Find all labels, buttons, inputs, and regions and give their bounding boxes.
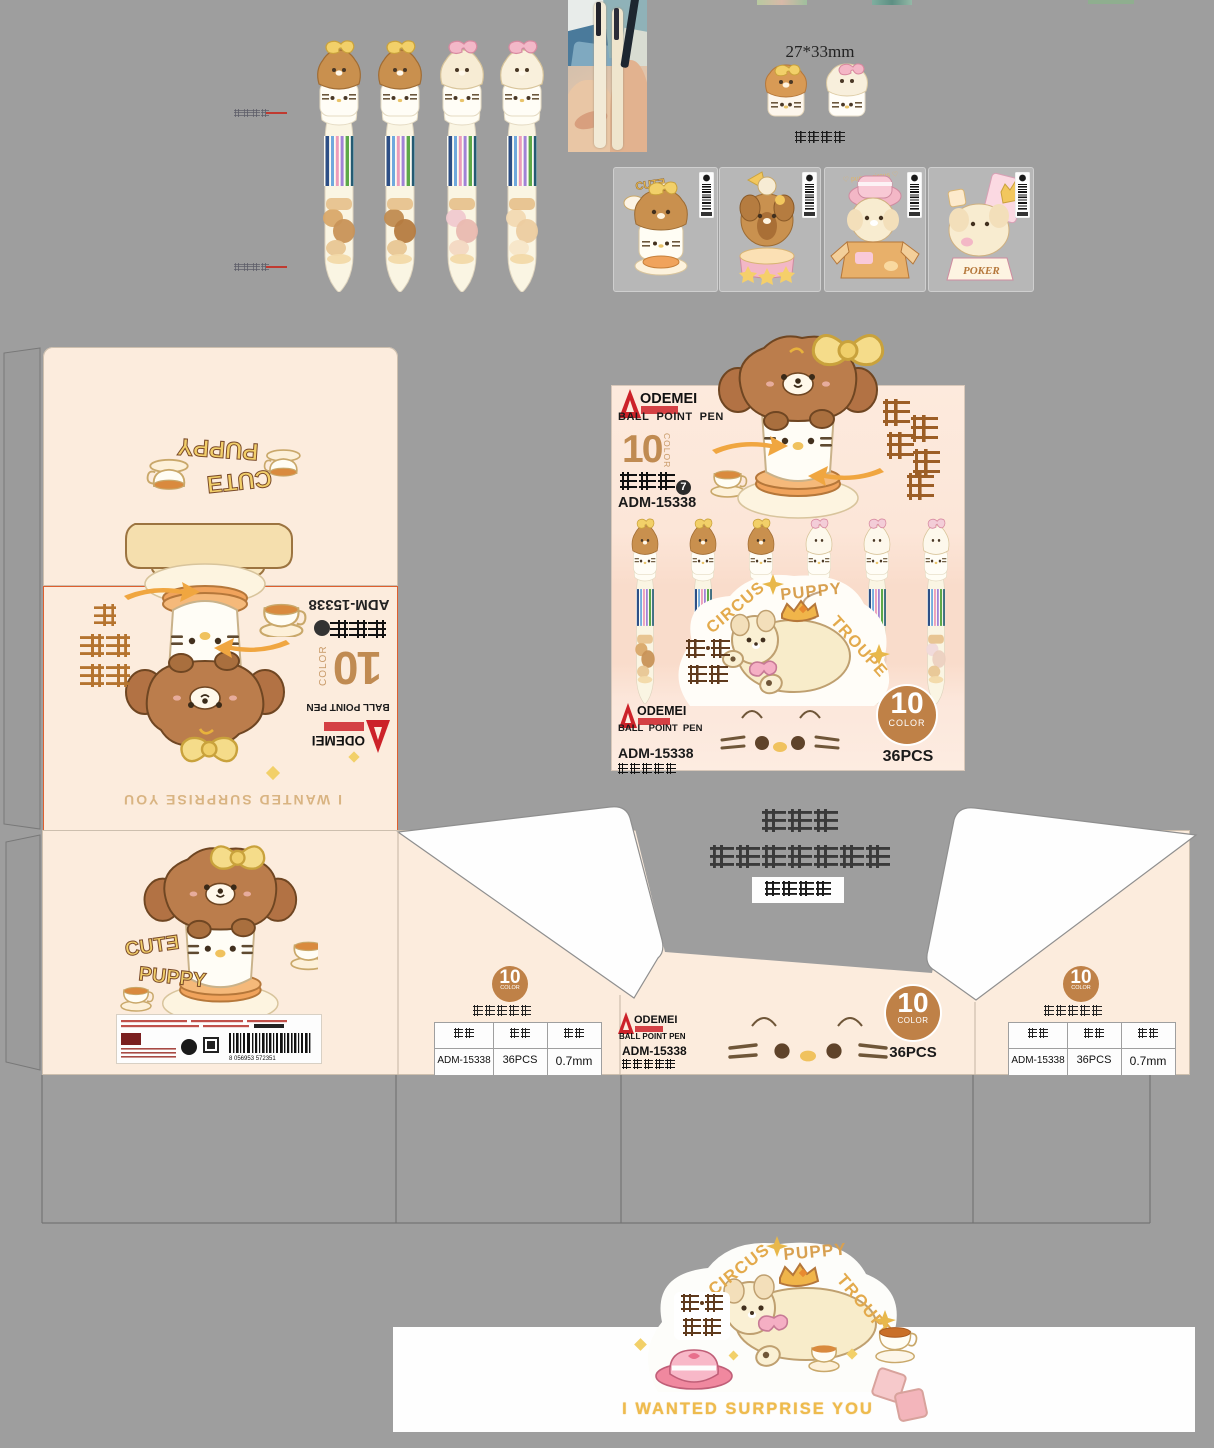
- svg-text:CUTƎ: CUTƎ: [205, 464, 273, 498]
- svg-text:ODEMEI: ODEMEI: [312, 733, 365, 748]
- svg-text:8 056953 572351: 8 056953 572351: [229, 1056, 276, 1061]
- svg-text:ODEMEI: ODEMEI: [640, 391, 697, 407]
- svg-text:PUPPY: PUPPY: [176, 436, 259, 465]
- svg-text:CUTƎ: CUTƎ: [124, 932, 181, 961]
- svg-text:POKER: POKER: [963, 265, 1000, 277]
- svg-text:ODEMEI: ODEMEI: [637, 704, 686, 718]
- svg-text:ODEMEI: ODEMEI: [634, 1014, 677, 1026]
- svg-text:BALL POINT PEN: BALL POINT PEN: [619, 1032, 686, 1040]
